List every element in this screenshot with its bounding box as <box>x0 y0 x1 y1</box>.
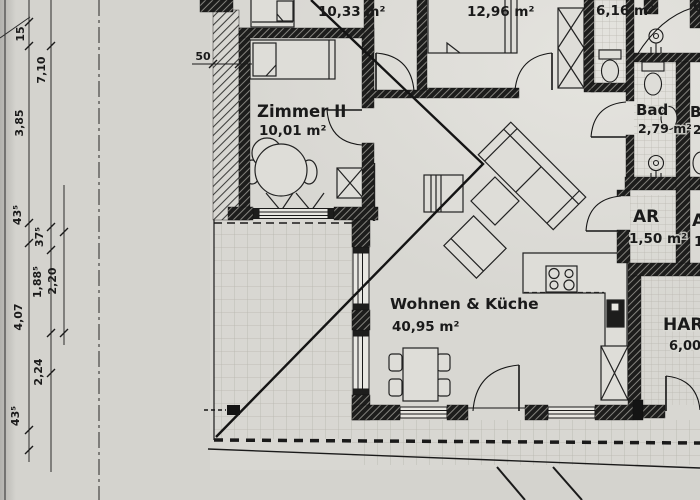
schlafzimmer-south-wall <box>427 88 519 98</box>
dim-407: 4,07 <box>12 303 25 330</box>
south-wall-b <box>352 405 400 420</box>
west-wall-block-b <box>352 310 370 330</box>
floor-plan-drawing: 10,33 m² 12,96 m² 6,16 m² Zimmer II 10,0… <box>0 0 700 500</box>
floor-plan-photo: 10,33 m² 12,96 m² 6,16 m² Zimmer II 10,0… <box>0 0 700 500</box>
area-wohnen: 40,95 m² <box>392 319 459 335</box>
ar-west-wall-a <box>617 190 630 196</box>
dim-435b: 43⁵ <box>9 406 22 426</box>
window-south-left <box>400 407 447 418</box>
toilet-bad <box>642 62 664 95</box>
wardrobe-hall <box>558 8 584 88</box>
corridor-south-wall <box>366 90 428 98</box>
dim-224: 2,24 <box>32 358 45 385</box>
dim-wall-50: 50 <box>195 50 211 63</box>
partial-label-1: 1, <box>694 234 700 250</box>
dim-1885: 1,88⁵ <box>31 266 44 298</box>
tv-board <box>424 175 463 212</box>
wall-cap-top-left <box>200 0 233 12</box>
south-wall-f <box>643 405 665 418</box>
south-wall-e <box>595 405 633 420</box>
dim-220: 2,20 <box>46 267 59 294</box>
wc-south-wall <box>591 83 627 92</box>
south-wall-c <box>447 405 468 420</box>
window-zimmer2-south <box>253 209 334 219</box>
area-har: 6,00 m² <box>669 339 700 354</box>
zimmer2-south-wall-a <box>228 207 253 220</box>
name-bad: Bad <box>636 101 668 119</box>
ar-floor-tiles <box>630 195 676 263</box>
dim-375: 37⁵ <box>33 227 46 247</box>
exterior-insulation-west <box>213 10 239 220</box>
bad-north-wall <box>634 53 700 62</box>
har-west-wall <box>628 276 641 405</box>
window-west-upper <box>353 247 369 310</box>
south-wall-d <box>525 405 548 420</box>
window-west-lower <box>353 330 369 395</box>
bed-room-top-left <box>251 0 294 27</box>
area-room-top-left: 10,33 m² <box>318 4 385 20</box>
name-zimmer2: Zimmer II <box>257 102 346 121</box>
area-bad: 2,79 m² <box>638 121 692 136</box>
area-ar: 1,50 m² <box>629 231 687 247</box>
name-har: HAR <box>663 315 700 335</box>
bad-west-wall-lower <box>626 135 634 180</box>
wc-west-wall <box>584 0 594 92</box>
partial-label-6: 6 <box>693 0 700 15</box>
zimmer2-north-wall <box>239 28 374 38</box>
bed-zimmer2 <box>250 40 335 79</box>
zimmer2-south-wall-b <box>334 207 378 220</box>
ar-har-wall <box>628 263 700 276</box>
dim-710: 7,10 <box>35 56 48 83</box>
dim-385: 3,85 <box>13 109 26 136</box>
partial-label-B: B <box>690 103 700 121</box>
west-wall-block-a <box>352 220 370 247</box>
area-zimmer2: 10,01 m² <box>259 123 326 139</box>
zimmer2-east-wall-lower <box>362 143 374 209</box>
window-south-right <box>548 407 595 418</box>
dim-435a: 43⁵ <box>11 205 24 225</box>
area-wc: 6,16 m² <box>596 3 654 19</box>
schlafzimmer-west-wall <box>417 0 427 90</box>
south-wall-pier <box>633 400 643 420</box>
area-schlafzimmer: 12,96 m² <box>467 4 534 20</box>
name-ar: AR <box>633 207 659 227</box>
dim-15: 15 <box>14 26 27 41</box>
name-wohnen: Wohnen & Küche <box>390 295 539 313</box>
partial-label-2: 2, <box>693 122 700 137</box>
partial-label-A: A <box>692 211 700 231</box>
wardrobe-zimmer2 <box>337 168 363 198</box>
